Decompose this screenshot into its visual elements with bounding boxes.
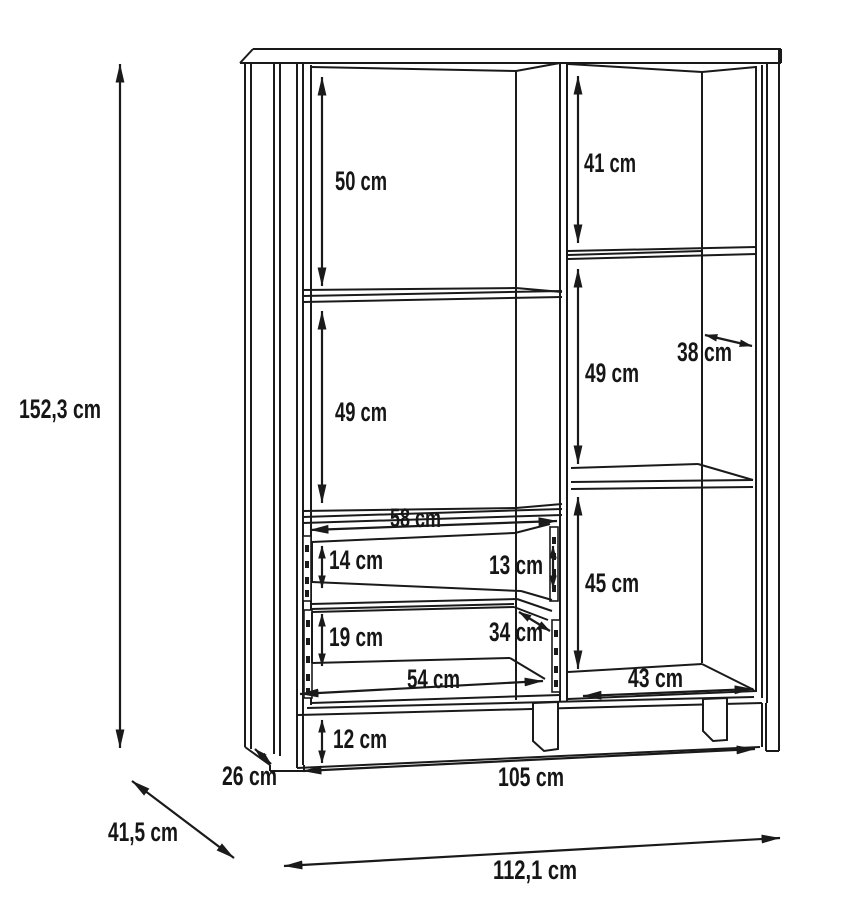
- right-frame: [756, 49, 779, 751]
- right-shelf-upper: [568, 247, 756, 259]
- label-overall-height: 152,3 cm: [19, 394, 101, 424]
- left-post: [245, 63, 311, 771]
- top-panel: [240, 49, 781, 63]
- label-right-inner-depth: 38 cm: [677, 337, 732, 367]
- diagram-canvas: 152,3 cm 50 cm 49 cm 58 cm 14 cm 13 cm 1…: [0, 0, 865, 921]
- label-left-middle-compartment: 49 cm: [335, 397, 387, 427]
- label-drawer-inner-depth: 34 cm: [489, 617, 543, 647]
- label-overall-width: 112,1 cm: [493, 855, 577, 885]
- label-right-middle-compartment: 49 cm: [585, 358, 639, 388]
- center-divider: [560, 63, 567, 702]
- cabinet-dimension-diagram: 152,3 cm 50 cm 49 cm 58 cm 14 cm 13 cm 1…: [0, 0, 865, 921]
- label-right-inner-width: 43 cm: [628, 663, 683, 693]
- label-top-drawer-inner: 13 cm: [489, 550, 543, 580]
- left-shelf-upper: [303, 288, 562, 302]
- label-overall-depth: 41,5 cm: [108, 817, 178, 847]
- label-drawer-inner-width: 54 cm: [407, 664, 460, 694]
- dimension-labels: 152,3 cm 50 cm 49 cm 58 cm 14 cm 13 cm 1…: [19, 148, 732, 885]
- center-leg: [533, 702, 558, 751]
- label-left-inner-width: 58 cm: [390, 503, 441, 533]
- label-plinth-width: 105 cm: [498, 762, 564, 792]
- label-right-bottom-compartment: 45 cm: [585, 568, 639, 598]
- label-foot-depth: 26 cm: [222, 761, 277, 791]
- label-left-top-compartment: 50 cm: [335, 166, 387, 196]
- label-top-drawer-front: 14 cm: [329, 545, 383, 575]
- label-plinth-height: 12 cm: [333, 724, 387, 754]
- right-shelf-middle: [571, 464, 753, 489]
- back-right-leg: [703, 698, 727, 741]
- interior-top-edges: [311, 63, 756, 72]
- label-right-top-compartment: 41 cm: [584, 148, 636, 178]
- label-bottom-drawer-front: 19 cm: [329, 622, 383, 652]
